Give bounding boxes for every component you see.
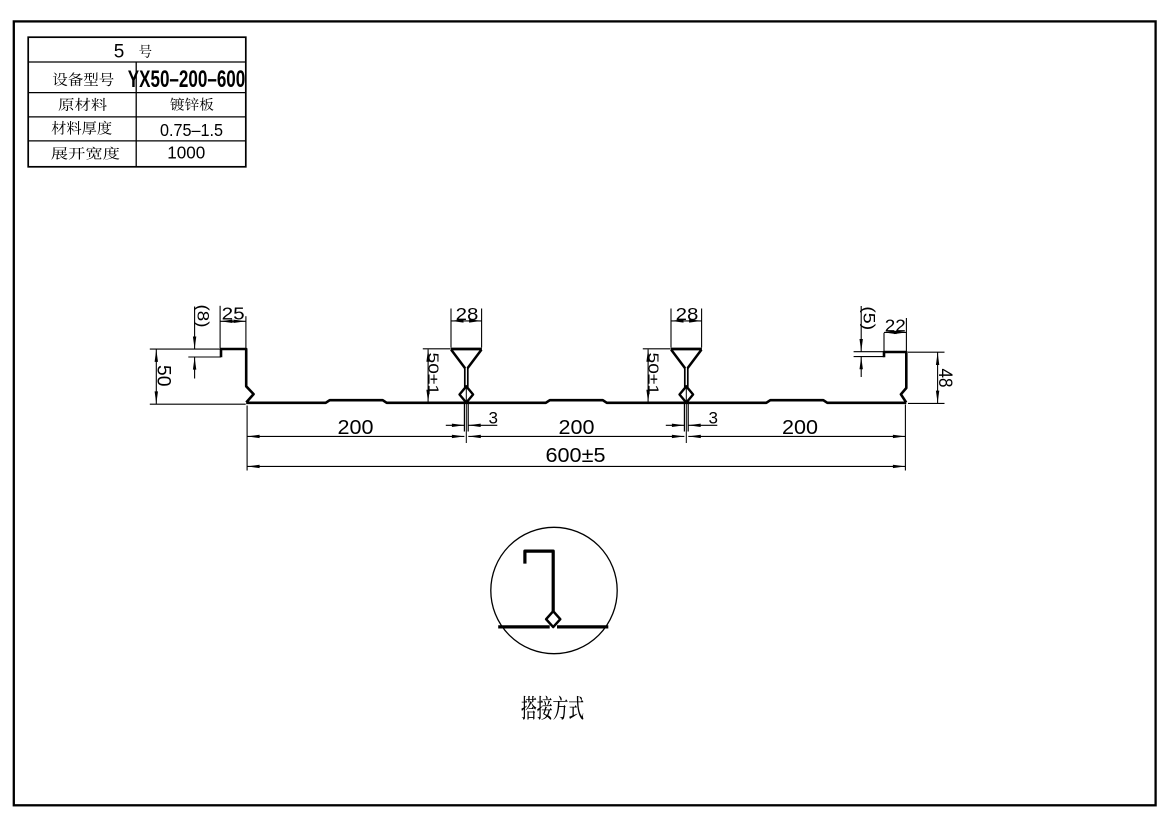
svg-text:50±1: 50±1 [425, 353, 441, 396]
svg-text:28: 28 [456, 304, 479, 324]
svg-text:3: 3 [708, 408, 717, 427]
svg-text:50±1: 50±1 [645, 353, 661, 396]
svg-text:(5): (5) [859, 306, 878, 330]
svg-text:0.75–1.5: 0.75–1.5 [160, 120, 223, 140]
svg-text:48: 48 [934, 369, 955, 388]
svg-text:5: 5 [114, 42, 125, 63]
svg-text:25: 25 [222, 304, 245, 324]
svg-text:50: 50 [153, 365, 174, 387]
svg-text:3: 3 [488, 408, 497, 427]
svg-text:(8): (8) [194, 305, 213, 328]
svg-text:200: 200 [782, 416, 818, 439]
svg-text:1000: 1000 [167, 143, 205, 163]
svg-text:600±5: 600±5 [546, 444, 606, 467]
svg-text:200: 200 [559, 416, 595, 439]
svg-text:22: 22 [885, 316, 906, 336]
svg-text:YX50–200–600: YX50–200–600 [128, 66, 246, 93]
svg-text:28: 28 [676, 304, 699, 324]
svg-text:200: 200 [338, 416, 374, 439]
